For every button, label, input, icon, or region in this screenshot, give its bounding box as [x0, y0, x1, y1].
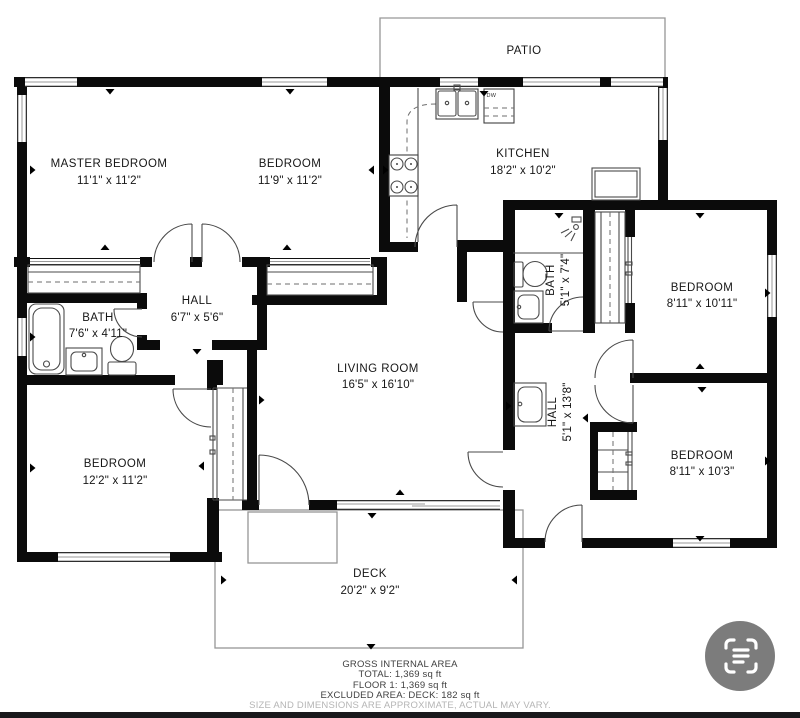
sliding-glass-door	[337, 500, 500, 510]
window	[658, 88, 668, 140]
hall-center-dims: 6'7" x 5'6"	[171, 312, 223, 324]
window	[767, 255, 777, 317]
bedroom-sw-dims: 12'2" x 11'2"	[83, 475, 148, 487]
scan-button[interactable]	[705, 621, 775, 691]
closet-slider	[30, 258, 140, 265]
floor-plan: DW	[0, 0, 800, 718]
door-opening	[503, 450, 515, 490]
walls	[14, 77, 777, 562]
door-back	[545, 505, 582, 542]
door-master-bedroom	[154, 224, 192, 262]
footer: GROSS INTERNAL AREA TOTAL: 1,369 sq ft F…	[0, 660, 800, 711]
bedroom-se-dims: 8'11" x 10'3"	[670, 466, 735, 478]
window	[523, 77, 600, 87]
scan-text-icon	[705, 621, 775, 691]
living-room-label: LIVING ROOM	[337, 363, 419, 375]
door-closet-living	[473, 302, 503, 332]
bedroom-top-dims: 11'9" x 11'2"	[258, 175, 322, 187]
hall-east-dims: 5'1" x 13'8"	[562, 382, 574, 441]
window	[58, 552, 170, 562]
closet-slider	[270, 258, 370, 265]
door-bedroom-top	[202, 224, 240, 262]
floorplan-screen: DW	[0, 0, 800, 718]
dishwasher-label: DW	[487, 93, 497, 99]
closet-bedroom-se	[598, 432, 632, 490]
living-room-dims: 16'5" x 16'10"	[342, 379, 414, 391]
closet-bedroom-top	[267, 265, 373, 295]
closets	[28, 212, 632, 500]
door-bedroom-se	[595, 385, 633, 423]
patio-label: PATIO	[506, 45, 541, 57]
door-deck	[259, 455, 309, 505]
sink-east	[514, 291, 543, 323]
hall-utility-sink	[514, 383, 546, 426]
stove	[389, 155, 418, 196]
closet-master	[28, 265, 140, 293]
bedroom-ne-dims: 8'11" x 10'11"	[667, 298, 738, 310]
bedroom-se-label: BEDROOM	[671, 450, 734, 462]
window	[17, 95, 27, 142]
bedroom-ne-label: BEDROOM	[671, 282, 734, 294]
master-bedroom-dims: 11'1" x 11'2"	[77, 175, 141, 187]
hall-east-label: HALL	[547, 397, 559, 428]
toilet-east	[514, 262, 547, 288]
door-kitchen	[415, 205, 457, 247]
door-bedroom-ne	[595, 340, 633, 378]
kitchen-label: KITCHEN	[496, 148, 550, 160]
window	[17, 318, 27, 356]
toilet-main	[108, 337, 136, 376]
deck-dims: 20'2" x 9'2"	[340, 585, 399, 597]
bath-east-dims: 5'1" x 7'4"	[560, 254, 572, 306]
bath-main-label: BATH	[82, 312, 114, 324]
window	[25, 77, 77, 87]
deck-label: DECK	[353, 568, 387, 580]
bottom-bar	[0, 712, 800, 718]
refrigerator	[592, 168, 640, 200]
dishwasher: DW	[484, 89, 514, 123]
master-bedroom-label: MASTER BEDROOM	[51, 158, 168, 170]
bathtub	[29, 304, 64, 374]
bedroom-top-label: BEDROOM	[259, 158, 322, 170]
door-hall-living	[468, 452, 503, 487]
vanity-sink	[66, 348, 102, 375]
shower-head-icon	[561, 217, 581, 241]
disclaimer: SIZE AND DIMENSIONS ARE APPROXIMATE, ACT…	[0, 701, 800, 711]
bedroom-sw-label: BEDROOM	[84, 458, 147, 470]
bath-main-dims: 7'6" x 4'11"	[69, 328, 127, 340]
closet-bedroom-sw	[210, 388, 247, 500]
kitchen-dims: 18'2" x 10'2"	[490, 165, 556, 177]
window	[262, 77, 327, 87]
bath-east-label: BATH	[545, 264, 557, 296]
window	[611, 77, 663, 87]
kitchen-sink	[436, 85, 478, 119]
door-bedroom-sw	[173, 389, 211, 427]
hall-center-label: HALL	[182, 295, 213, 307]
